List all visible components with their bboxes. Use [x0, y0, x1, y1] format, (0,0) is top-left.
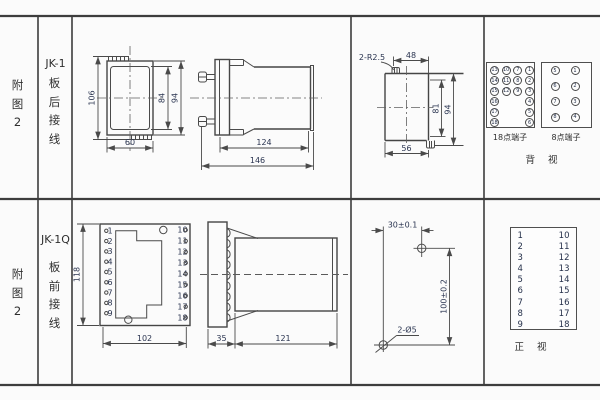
- table-cell-right: 14: [559, 275, 570, 286]
- dim-146: 146: [250, 156, 265, 165]
- table-row: 716: [511, 298, 576, 309]
- table-cell-right: 11: [559, 242, 570, 253]
- table-row: 615: [511, 286, 576, 297]
- dim-118: 118: [73, 267, 82, 282]
- terminal-18pt-15: 15: [490, 87, 499, 96]
- terminal-screws: [227, 229, 230, 322]
- terminal-18pt-10: 10: [502, 66, 511, 75]
- front-terminal-3: 3: [107, 247, 112, 256]
- model-label-jk1: JK-1: [39, 57, 72, 70]
- dim-100: 100±0.2: [440, 279, 449, 314]
- table-cell-left: 1: [518, 231, 523, 242]
- terminal-18pt-7: 7: [513, 66, 522, 75]
- front-terminal-12: 12: [177, 248, 187, 257]
- terminal-18pt-16: 16: [490, 97, 499, 106]
- front-terminal-9: 9: [107, 309, 112, 318]
- figure-label-bottom: 附图2: [10, 265, 25, 321]
- terminal-18pt-12: 12: [502, 87, 511, 96]
- jk1-cutout-view: 2-R2.5 48 81 94 56: [359, 51, 464, 158]
- table-cell-left: 2: [518, 242, 523, 253]
- table-cell-right: 10: [559, 231, 570, 242]
- dim-81: 81: [432, 103, 441, 113]
- front-terminal-5: 5: [107, 268, 112, 277]
- terminal-table-front: 110211312413514615716817918: [510, 227, 577, 330]
- table-row: 211: [511, 242, 576, 253]
- terminal-8pt-1: 1: [571, 66, 580, 75]
- table-cell-left: 4: [518, 264, 523, 275]
- front-terminal-15: 15: [177, 280, 187, 289]
- wiring-label-top: 板后接线: [47, 74, 62, 148]
- front-terminal-13: 13: [177, 259, 187, 268]
- front-terminal-6: 6: [107, 278, 112, 287]
- terminal-8pt-8: 8: [551, 113, 560, 122]
- table-cell-left: 8: [518, 309, 523, 320]
- front-terminal-2: 2: [107, 237, 112, 246]
- terminal-block-18pt: 131071141182151293164175186: [486, 62, 535, 129]
- dim-121: 121: [275, 334, 290, 343]
- dim-60: 60: [125, 138, 135, 147]
- front-terminal-18: 18: [177, 313, 187, 322]
- front-terminal-4: 4: [107, 257, 112, 266]
- table-cell-left: 3: [518, 253, 523, 264]
- dim-30: 30±0.1: [388, 221, 418, 230]
- terminal-18pt-4: 4: [525, 97, 534, 106]
- dim-56: 56: [401, 144, 411, 153]
- terminal-18pt-18: 18: [490, 118, 499, 127]
- jk1-side-view: 124 146: [190, 60, 322, 171]
- jk1-front-view: 106 84 94 60: [88, 46, 186, 153]
- table-cell-right: 15: [559, 286, 570, 297]
- jk1q-front-view: 123456789101112131415161718 118 102: [73, 224, 191, 348]
- terminal-18pt-3: 3: [525, 87, 534, 96]
- drawing-sheet: 106 84 94 60: [0, 0, 600, 400]
- table-row: 312: [511, 253, 576, 264]
- dim-94: 94: [171, 93, 180, 103]
- terminal-8pt-4: 4: [571, 113, 580, 122]
- front-terminal-11: 11: [177, 237, 187, 246]
- table-row: 413: [511, 264, 576, 275]
- terminal-8pt-7: 7: [551, 97, 560, 106]
- table-cell-left: 6: [518, 286, 523, 297]
- table-cell-left: 7: [518, 298, 523, 309]
- table-row: 110: [511, 231, 576, 242]
- jk1q-side-view: 35 121: [200, 222, 348, 349]
- dim-124: 124: [256, 138, 271, 147]
- front-terminal-17: 17: [177, 302, 187, 311]
- dim-106: 106: [88, 90, 97, 105]
- front-terminal-8: 8: [107, 299, 112, 308]
- terminal-18pt-2: 2: [525, 76, 534, 85]
- terminal-18pt-5: 5: [525, 108, 534, 117]
- front-terminal-14: 14: [177, 270, 187, 279]
- dim-94-cutout: 94: [444, 104, 453, 114]
- front-terminal-7: 7: [107, 288, 112, 297]
- table-cell-right: 13: [559, 264, 570, 275]
- table-cell-left: 9: [518, 320, 523, 331]
- terminal-8pt-2: 2: [571, 82, 580, 91]
- terminal-8pt-5: 5: [551, 66, 560, 75]
- table-cell-right: 16: [559, 298, 570, 309]
- dim-84: 84: [158, 93, 167, 103]
- table-row: 918: [511, 320, 576, 331]
- terminal-18pt-17: 17: [490, 108, 499, 117]
- jk1q-drill-plan: 30±0.1 100±0.2 2-Ø5: [372, 221, 456, 353]
- front-terminal-1: 1: [107, 227, 112, 236]
- note-2-d5: 2-Ø5: [397, 325, 416, 335]
- front-terminal-10: 10: [177, 226, 187, 235]
- terminal-18pt-8: 8: [513, 76, 522, 85]
- table-cell-left: 5: [518, 275, 523, 286]
- terminal-18pt-13: 13: [490, 66, 499, 75]
- terminal-18pt-11: 11: [502, 76, 511, 85]
- figure-label-top: 附图2: [10, 76, 25, 132]
- label-18pt: 18点端子: [480, 132, 540, 143]
- jk1q-terminal-numbers: 123456789101112131415161718: [105, 226, 188, 323]
- terminal-8pt-3: 3: [571, 97, 580, 106]
- table-cell-right: 12: [559, 253, 570, 264]
- note-2-r2-5: 2-R2.5: [359, 53, 385, 62]
- table-row: 514: [511, 275, 576, 286]
- terminal-18pt-1: 1: [525, 66, 534, 75]
- front-terminal-16: 16: [177, 291, 187, 300]
- caption-front-view: 正 视: [501, 339, 565, 353]
- caption-rear-view: 背 视: [509, 152, 579, 166]
- dim-48: 48: [406, 51, 416, 60]
- table-row: 817: [511, 309, 576, 320]
- dim-102: 102: [137, 334, 152, 343]
- terminal-8pt-6: 6: [551, 82, 560, 91]
- terminal-18pt-14: 14: [490, 76, 499, 85]
- terminal-block-8pt: 51627384: [541, 62, 592, 129]
- model-label-jk1q: JK-1Q: [37, 233, 74, 246]
- table-cell-right: 17: [559, 309, 570, 320]
- dim-35: 35: [216, 334, 226, 343]
- terminal-18pt-6: 6: [525, 118, 534, 127]
- wiring-label-bottom: 板前接线: [47, 258, 62, 332]
- label-8pt: 8点端子: [538, 132, 594, 143]
- table-cell-right: 18: [559, 320, 570, 331]
- terminal-18pt-9: 9: [513, 87, 522, 96]
